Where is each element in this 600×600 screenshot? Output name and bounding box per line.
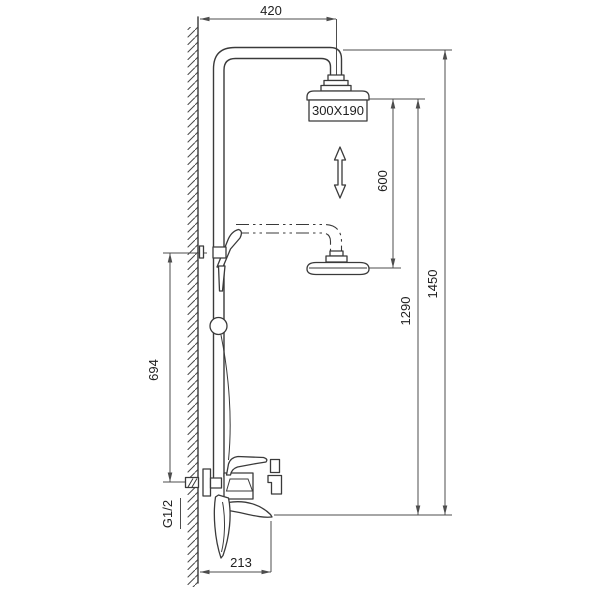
dim-213-label: 213 xyxy=(230,555,252,570)
mixer-escutcheon xyxy=(203,469,211,496)
dim-600-label: 600 xyxy=(375,170,390,192)
slide-ball-joint xyxy=(210,318,227,335)
shower-system-technical-drawing: 420 600 1290 1450 694 G1/2 213 xyxy=(0,0,600,600)
dim-420: 420 xyxy=(200,3,337,76)
hand-shower-holder-clamp xyxy=(213,247,226,258)
dim-1290-label: 1290 xyxy=(398,297,413,326)
mixer-lever-handle xyxy=(227,457,267,476)
dim-213: 213 xyxy=(200,521,271,572)
head-size-label: 300X190 xyxy=(312,103,364,118)
shower-hose-line xyxy=(221,335,230,460)
diagram-canvas: 420 600 1290 1450 694 G1/2 213 xyxy=(0,0,600,600)
overhead-shower-head: 300X190 xyxy=(307,75,369,121)
wall-bracket-plate xyxy=(200,246,204,258)
thread-size-label: G1/2 xyxy=(160,500,175,528)
wall-hatching xyxy=(188,27,199,587)
head-dome xyxy=(307,91,369,100)
head-connector-nut xyxy=(324,81,348,86)
height-adjust-arrow-icon xyxy=(335,147,346,198)
lowered-head-collar xyxy=(330,251,343,256)
phantom-arm-inner-line xyxy=(236,233,331,251)
dim-1450-label: 1450 xyxy=(425,270,440,299)
lowered-head-nut xyxy=(326,256,347,262)
mixer-nipple-nut xyxy=(211,478,222,488)
lowered-shower-head xyxy=(307,251,369,275)
dim-694-label: 694 xyxy=(146,359,161,381)
thread-callout: G1/2 xyxy=(160,498,181,529)
riser-fittings xyxy=(200,230,242,461)
diverter-knob xyxy=(271,460,280,473)
phantom-arm-outer-line xyxy=(236,225,342,252)
hand-shower-hook xyxy=(268,476,282,495)
head-connector-cone xyxy=(321,86,351,92)
dim-420-label: 420 xyxy=(260,3,282,18)
mixer-assembly xyxy=(186,457,282,559)
head-connector-collar xyxy=(328,75,344,81)
mixer-spout xyxy=(228,502,272,518)
